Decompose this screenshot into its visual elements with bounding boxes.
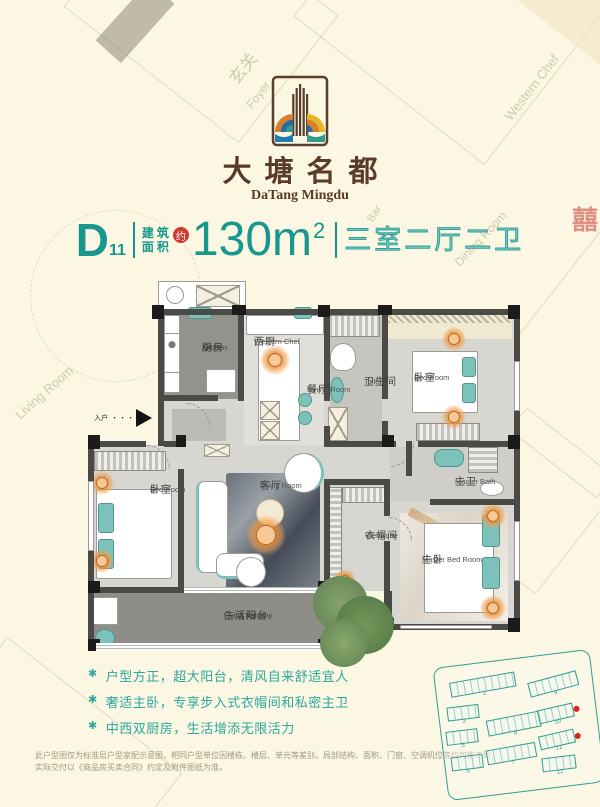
- stove-icon: [164, 333, 180, 373]
- wall: [324, 426, 330, 447]
- column: [382, 435, 394, 447]
- unit-number: 11: [109, 242, 126, 260]
- column: [88, 581, 100, 593]
- armchair: [236, 557, 266, 587]
- column: [378, 305, 392, 315]
- entry-arrow: 入户 ・・・: [94, 409, 152, 427]
- brand-name-en: DaTang Mingdu: [0, 188, 600, 204]
- building: 3: [446, 704, 479, 722]
- window: [514, 361, 520, 411]
- building-number: 9: [553, 690, 558, 697]
- closet-cabinet: [342, 487, 388, 503]
- lamp-glow: [260, 345, 290, 375]
- column: [508, 305, 520, 319]
- feature-text: 户型方正，超大阳台，清风自来舒适宜人: [106, 666, 349, 685]
- toilet-shelf: [328, 315, 380, 337]
- floor-plan: 入户 ・・・ 厨房 Kitchen 西厨 Western Chef 餐厅 Din…: [88, 281, 520, 653]
- highlight-dot: [573, 706, 580, 713]
- building: 7: [486, 742, 538, 765]
- column: [508, 618, 520, 632]
- island-cabinet-hatch: [260, 401, 280, 420]
- round-table-glow: [246, 515, 286, 555]
- area-label-bottom: 面积: [142, 240, 172, 254]
- window: [400, 625, 492, 629]
- building-number: 12: [556, 769, 563, 776]
- window: [88, 481, 94, 551]
- poster-page: 玄关 Foyer Western Chef Bar Dining Room Li…: [0, 0, 600, 807]
- area-value: 130m: [192, 216, 312, 264]
- wall: [324, 479, 390, 485]
- tree-icon: [320, 619, 368, 667]
- room-layout-text: 三室二厅二卫: [344, 227, 524, 254]
- column: [232, 305, 246, 315]
- floor-balcony: [94, 593, 330, 649]
- building-number: 7: [511, 760, 515, 767]
- wall: [430, 499, 520, 505]
- toilet-icon: [330, 343, 356, 371]
- building-number: 11: [555, 745, 563, 753]
- pillow: [462, 357, 476, 377]
- building-number: 3: [462, 718, 466, 725]
- washer: [92, 597, 118, 625]
- feature-text: 奢适主卧，专享步入式衣帽间和私密主卫: [106, 692, 349, 711]
- bay-window-hatch: [388, 315, 512, 323]
- wall: [514, 309, 520, 630]
- brand-logo-icon: [270, 74, 330, 148]
- entry-dots: ・・・: [111, 413, 135, 423]
- window: [514, 521, 520, 581]
- entry-arrow-icon: [136, 409, 152, 427]
- area-label-top: 建筑: [142, 226, 172, 240]
- building-number: 8: [513, 730, 518, 737]
- brand-name-cn: 大塘名都: [0, 148, 600, 190]
- building-highlighted: 11: [538, 729, 576, 751]
- site-plan: 1 9 3 8 10 5 11 6 7 12: [432, 649, 600, 801]
- wall: [406, 441, 412, 476]
- lamp-glow: [442, 405, 466, 429]
- wall: [158, 309, 520, 315]
- building: 1: [449, 671, 517, 697]
- star-bullet-icon: ✱: [88, 719, 98, 732]
- wall: [88, 587, 184, 593]
- feature-text: 中西双厨房，生活增添无限活力: [106, 718, 295, 737]
- building-number: 6: [466, 768, 470, 775]
- western-kitchen-counter: [246, 315, 324, 335]
- wall: [324, 479, 330, 591]
- divider: [335, 222, 337, 258]
- divider: [133, 222, 135, 258]
- watermark-living-room: Living Room: [12, 363, 76, 423]
- building-number: 10: [554, 719, 562, 727]
- wall: [158, 395, 218, 401]
- wall: [158, 309, 164, 446]
- highlight-dot: [574, 733, 581, 740]
- wall: [418, 441, 520, 447]
- column: [508, 435, 520, 449]
- unit-headline: D 11 建筑 面积 约 130m 2 三室二厅二卫: [0, 216, 600, 264]
- closet-cabinet: [328, 487, 342, 583]
- shower-area: [468, 447, 498, 473]
- shaft-hatch: [328, 407, 348, 441]
- living-slider-window: [184, 587, 330, 593]
- lamp-glow: [442, 327, 466, 351]
- approx-badge: 约: [173, 227, 189, 243]
- wall: [238, 309, 244, 401]
- lamp-glow: [480, 595, 506, 621]
- foyer-cabinet-hatch: [204, 444, 230, 457]
- fridge: [206, 369, 236, 393]
- feature-item: ✱ 户型方正，超大阳台，清风自来舒适宜人: [88, 666, 349, 685]
- dining-chair: [298, 411, 312, 425]
- building: 9: [527, 670, 579, 697]
- pillow: [482, 557, 500, 589]
- balcony-window: [96, 643, 324, 651]
- lamp-glow: [480, 503, 506, 529]
- building: 5: [445, 728, 478, 746]
- bathtub-icon: [434, 449, 464, 467]
- building-number: 5: [461, 743, 465, 750]
- pillow: [462, 383, 476, 403]
- column: [152, 305, 164, 319]
- area-exponent: 2: [313, 218, 325, 244]
- area-label: 建筑 面积: [142, 226, 172, 255]
- shaft-hatch: [196, 285, 240, 307]
- wall: [384, 479, 390, 516]
- building: 8: [486, 711, 542, 737]
- feature-item: ✱ 奢适主卧，专享步入式衣帽间和私密主卫: [88, 692, 349, 711]
- pillow: [98, 503, 114, 533]
- building: 6: [450, 754, 483, 772]
- star-bullet-icon: ✱: [88, 693, 98, 706]
- entry-label: 入户: [94, 413, 108, 423]
- column: [88, 435, 100, 449]
- star-bullet-icon: ✱: [88, 667, 98, 680]
- column: [176, 435, 186, 447]
- building-number: 1: [482, 691, 486, 698]
- island-cabinet-hatch: [260, 421, 280, 440]
- building-highlighted: 10: [537, 703, 575, 725]
- building: 12: [541, 754, 576, 772]
- platform-fixture-icon: [166, 286, 184, 304]
- unit-letter: D: [76, 217, 109, 263]
- column: [318, 305, 330, 317]
- feature-item: ✱ 中西双厨房，生活增添无限活力: [88, 718, 295, 737]
